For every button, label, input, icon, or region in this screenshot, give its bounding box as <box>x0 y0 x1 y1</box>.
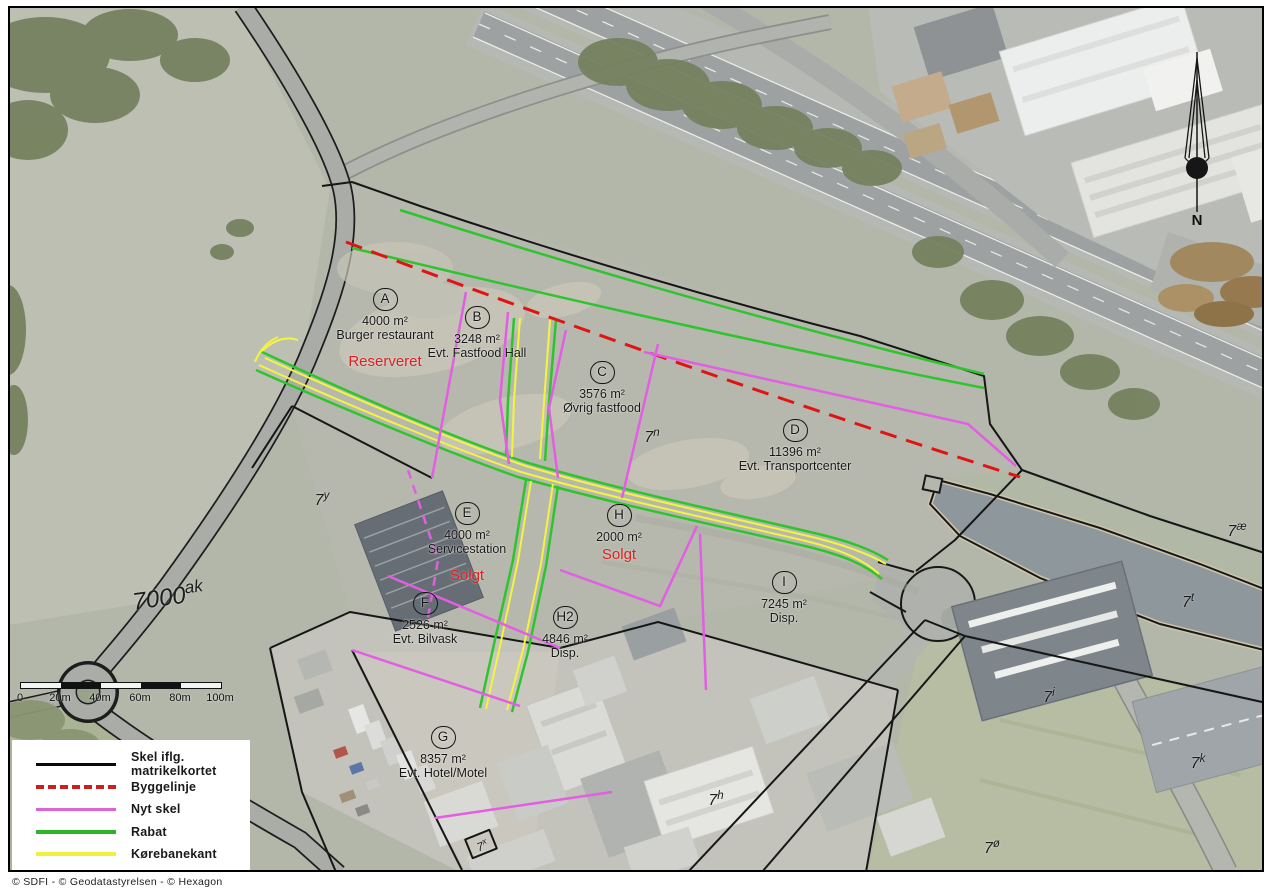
cadastre-number-7000ak: 7000ak <box>130 575 205 617</box>
cadastre-number-7i: 7i <box>1043 687 1054 707</box>
parcel-letter: A <box>373 288 398 311</box>
parcel-use: Evt. Transportcenter <box>720 459 870 474</box>
cadastre-number-7x: 7x <box>474 836 490 855</box>
legend-label: Rabat <box>131 825 167 839</box>
scale-segment <box>141 683 181 688</box>
copyright-attribution: © SDFI - © Geodatastyrelsen - © Hexagon <box>12 876 223 888</box>
parcel-area: 3248 m² <box>427 332 527 346</box>
parcel-label-h2: H2 4846 m² Disp. <box>515 606 615 661</box>
parcel-letter: E <box>455 502 480 525</box>
parcel-status: Solgt <box>564 546 674 563</box>
scale-tick: 100m <box>206 692 234 704</box>
development-plot-map: A 4000 m² Burger restaurant Reserveret B… <box>0 0 1280 896</box>
legend-item: Skel iflg. matrikelkortet <box>36 753 250 776</box>
parcel-letter: C <box>590 361 615 384</box>
parcel-letter: H <box>607 504 632 527</box>
parcel-area: 3576 m² <box>542 387 662 401</box>
parcel-use: Øvrig fastfood <box>542 401 662 416</box>
parcel-area: 7245 m² <box>734 597 834 611</box>
parcel-use: Disp. <box>515 646 615 661</box>
scale-tick: 0 <box>17 692 23 704</box>
parcel-area: 4846 m² <box>515 632 615 646</box>
parcel-label-d: D 11396 m² Evt. Transportcenter <box>720 419 870 474</box>
parcel-use: Disp. <box>734 611 834 626</box>
scale-segment <box>101 683 141 688</box>
legend-swatch-byggelinje <box>36 785 116 789</box>
scale-tick: 60m <box>129 692 150 704</box>
parcel-letter: H2 <box>553 606 578 629</box>
legend-label: Skel iflg. matrikelkortet <box>131 750 250 778</box>
parcel-area: 4000 m² <box>407 528 527 542</box>
parcel-area: 8357 m² <box>378 752 508 766</box>
map-legend: Skel iflg. matrikelkortet Byggelinje Nyt… <box>12 740 250 870</box>
scale-segment <box>61 683 101 688</box>
cadastre-number-7y: 7y <box>315 490 330 510</box>
legend-swatch-skel <box>36 763 116 766</box>
parcel-area: 2526 m² <box>370 618 480 632</box>
scale-tick: 20m <box>49 692 70 704</box>
parcel-label-g: G 8357 m² Evt. Hotel/Motel <box>378 726 508 781</box>
parcel-use: Evt. Bilvask <box>370 632 480 647</box>
legend-label: Nyt skel <box>131 802 181 816</box>
parcel-label-h: H 2000 m² Solgt <box>564 504 674 563</box>
legend-label: Byggelinje <box>131 780 196 794</box>
scale-tick: 80m <box>169 692 190 704</box>
legend-item: Byggelinje <box>36 776 250 799</box>
cadastre-number-7h: 7h <box>708 790 723 810</box>
legend-swatch-korebanekant <box>36 852 116 856</box>
parcel-use: Evt. Hotel/Motel <box>378 766 508 781</box>
scale-segment <box>21 683 61 688</box>
legend-swatch-rabat <box>36 830 116 834</box>
legend-swatch-nyt-skel <box>36 808 116 811</box>
parcel-letter: B <box>465 306 490 329</box>
parcel-label-c: C 3576 m² Øvrig fastfood <box>542 361 662 416</box>
north-label: N <box>1192 212 1203 229</box>
cadastre-number-7o: 7ø <box>984 838 1000 858</box>
parcel-status: Solgt <box>407 567 527 584</box>
parcel-letter: I <box>772 571 797 594</box>
parcel-label-i: I 7245 m² Disp. <box>734 571 834 626</box>
parcel-letter: D <box>783 419 808 442</box>
scale-bar: 0 20m 40m 60m 80m 100m <box>20 682 222 705</box>
parcel-letter: F <box>413 592 438 615</box>
scale-bar-segments <box>20 682 222 689</box>
cadastre-number-7t: 7t <box>1182 592 1194 612</box>
parcel-use: Evt. Fastfood Hall <box>427 346 527 361</box>
parcel-label-e: E 4000 m² Servicestation Solgt <box>407 502 527 584</box>
parcel-area: 11396 m² <box>720 445 870 459</box>
cadastre-number-7ae: 7æ <box>1227 521 1246 541</box>
cadastre-number-7n: 7n <box>644 427 659 447</box>
parcel-label-b: B 3248 m² Evt. Fastfood Hall <box>427 306 527 361</box>
legend-item: Nyt skel <box>36 798 250 821</box>
parcel-label-f: F 2526 m² Evt. Bilvask <box>370 592 480 647</box>
scale-segment <box>181 683 221 688</box>
parcel-use: Servicestation <box>407 542 527 557</box>
parcel-letter: G <box>431 726 456 749</box>
scale-bar-labels: 0 20m 40m 60m 80m 100m <box>20 692 222 705</box>
scale-tick: 40m <box>89 692 110 704</box>
cadastre-number-7k: 7k <box>1191 753 1206 773</box>
legend-label: Kørebanekant <box>131 847 217 861</box>
parcel-area: 2000 m² <box>564 530 674 544</box>
legend-item: Kørebanekant <box>36 843 250 866</box>
legend-item: Rabat <box>36 821 250 844</box>
